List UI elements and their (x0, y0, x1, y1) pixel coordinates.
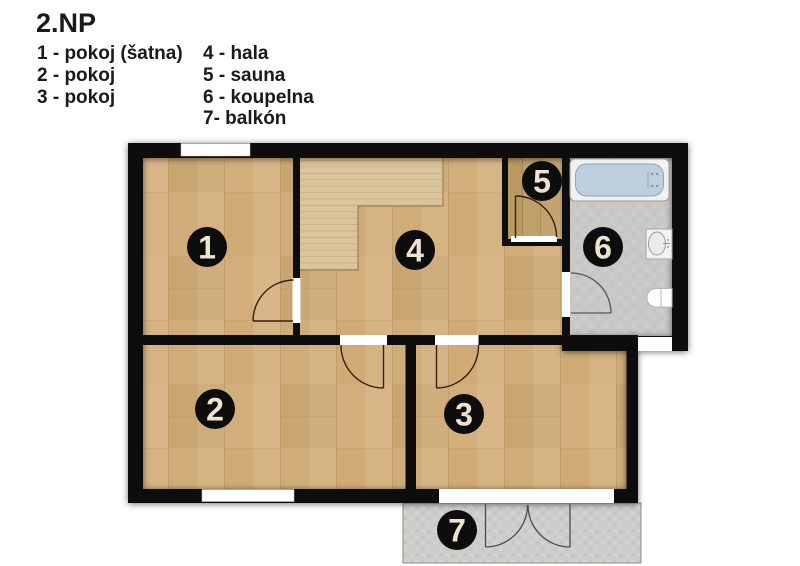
svg-text:1: 1 (198, 230, 216, 266)
svg-text:3: 3 (455, 397, 473, 433)
svg-text:4: 4 (406, 233, 424, 269)
svg-text:6: 6 (594, 230, 612, 266)
svg-text:7: 7 (448, 513, 466, 549)
svg-text:2: 2 (206, 392, 224, 428)
svg-text:5: 5 (533, 164, 551, 200)
